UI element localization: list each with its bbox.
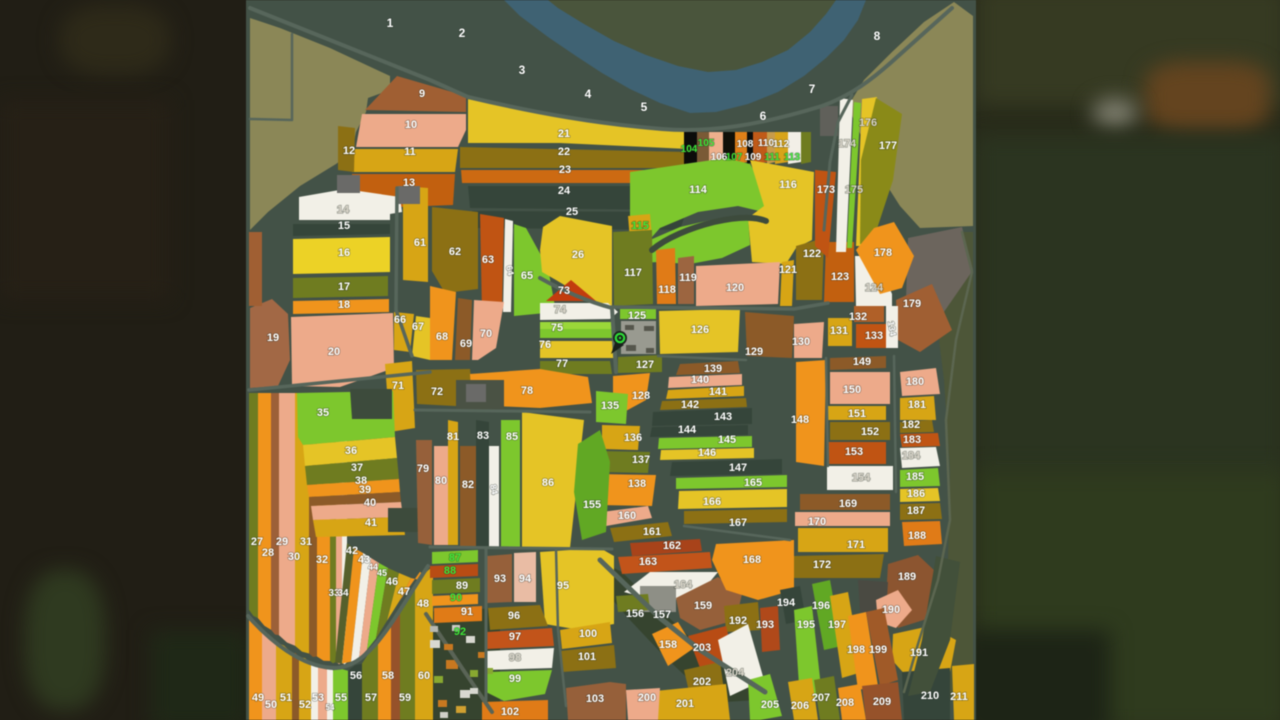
svg-text:209: 209 [873,696,891,708]
svg-text:153: 153 [845,446,863,458]
svg-text:81: 81 [447,431,459,443]
svg-text:76: 76 [539,339,551,351]
svg-text:75: 75 [551,322,563,334]
svg-text:13: 13 [403,177,415,189]
svg-text:164: 164 [674,579,693,591]
svg-text:207: 207 [812,692,830,704]
svg-text:140: 140 [691,374,709,386]
svg-text:19: 19 [267,332,279,344]
svg-text:173: 173 [817,184,835,196]
svg-text:107: 107 [726,152,743,163]
svg-text:3: 3 [519,63,526,77]
svg-text:190: 190 [882,604,900,616]
svg-text:34: 34 [337,588,349,599]
svg-text:79: 79 [417,463,429,475]
svg-text:105: 105 [698,138,715,149]
svg-text:74: 74 [554,304,567,316]
svg-text:186: 186 [907,488,925,500]
svg-text:163: 163 [639,556,657,568]
svg-text:25: 25 [566,206,578,218]
svg-text:73: 73 [558,285,570,297]
svg-text:131: 131 [830,325,848,337]
svg-text:181: 181 [908,399,926,411]
svg-text:185: 185 [906,471,924,483]
svg-text:84: 84 [488,483,500,495]
svg-text:120: 120 [726,282,744,294]
svg-text:28: 28 [262,547,274,559]
svg-text:136: 136 [624,432,642,444]
svg-text:175: 175 [845,184,863,196]
svg-text:56: 56 [350,670,362,682]
svg-text:178: 178 [874,247,892,259]
svg-text:104: 104 [681,144,698,155]
svg-text:70: 70 [480,328,492,340]
svg-text:162: 162 [663,540,681,552]
svg-text:144: 144 [678,424,697,436]
svg-text:167: 167 [729,517,747,529]
svg-text:90: 90 [450,592,462,604]
svg-text:200: 200 [638,692,656,704]
svg-text:64: 64 [504,264,516,276]
svg-text:16: 16 [338,247,350,259]
svg-text:102: 102 [501,706,519,718]
svg-text:130: 130 [792,336,810,348]
svg-text:24: 24 [558,185,571,197]
svg-text:22: 22 [558,146,570,158]
svg-text:59: 59 [399,692,411,704]
svg-text:42: 42 [346,545,358,557]
svg-text:89: 89 [456,580,468,592]
svg-text:111: 111 [764,152,780,163]
svg-text:137: 137 [632,454,650,466]
svg-text:115: 115 [631,220,649,232]
svg-text:191: 191 [910,647,928,659]
svg-text:171: 171 [847,539,865,551]
svg-text:83: 83 [477,430,489,442]
svg-text:116: 116 [779,179,797,191]
svg-text:31: 31 [300,536,312,548]
svg-text:196: 196 [812,600,830,612]
svg-text:122: 122 [803,248,821,260]
svg-text:41: 41 [365,517,377,529]
svg-text:91: 91 [461,606,473,618]
svg-text:94: 94 [519,573,532,585]
svg-text:62: 62 [449,246,461,258]
svg-text:72: 72 [431,386,443,398]
svg-text:112: 112 [773,139,790,150]
svg-text:132: 132 [849,311,867,323]
svg-text:14: 14 [337,204,350,216]
svg-text:52: 52 [299,699,311,711]
svg-text:53: 53 [312,692,324,704]
svg-text:193: 193 [756,619,774,631]
svg-text:20: 20 [328,346,340,358]
svg-text:93: 93 [494,573,506,585]
svg-text:156: 156 [626,608,644,620]
svg-text:176: 176 [859,117,877,129]
svg-text:146: 146 [698,447,716,459]
svg-text:154: 154 [852,472,871,484]
svg-text:80: 80 [435,475,447,487]
svg-text:103: 103 [586,693,604,705]
svg-text:32: 32 [316,554,328,566]
svg-text:17: 17 [338,281,350,293]
svg-text:128: 128 [632,390,650,402]
svg-text:108: 108 [737,139,754,150]
svg-text:88: 88 [444,565,456,577]
svg-text:143: 143 [714,411,732,423]
svg-text:60: 60 [418,670,430,682]
svg-text:95: 95 [557,580,569,592]
svg-text:114: 114 [689,184,708,196]
svg-text:82: 82 [462,479,474,491]
svg-text:204: 204 [726,667,745,679]
svg-text:147: 147 [729,462,747,474]
svg-text:177: 177 [879,140,897,152]
svg-text:55: 55 [335,692,347,704]
svg-text:21: 21 [558,128,570,140]
svg-text:40: 40 [364,497,376,509]
svg-text:119: 119 [679,272,697,284]
svg-text:49: 49 [252,692,264,704]
svg-text:208: 208 [836,697,854,709]
svg-text:98: 98 [509,652,521,664]
svg-text:149: 149 [853,356,871,368]
svg-text:211: 211 [950,691,968,703]
svg-text:166: 166 [703,496,721,508]
svg-text:158: 158 [659,639,677,651]
svg-text:5: 5 [641,100,648,114]
svg-text:125: 125 [628,310,646,322]
svg-text:7: 7 [809,82,816,96]
svg-text:189: 189 [898,571,916,583]
svg-text:37: 37 [351,462,363,474]
svg-text:6: 6 [760,109,767,123]
svg-text:126: 126 [691,324,709,336]
svg-text:150: 150 [843,384,861,396]
svg-text:29: 29 [276,536,288,548]
svg-text:183: 183 [903,434,921,446]
svg-text:159: 159 [694,600,712,612]
svg-text:100: 100 [579,628,597,640]
svg-text:129: 129 [745,346,763,358]
svg-text:30: 30 [288,551,300,563]
svg-text:68: 68 [436,331,448,343]
svg-text:180: 180 [906,376,924,388]
svg-text:23: 23 [559,164,571,176]
svg-text:12: 12 [343,145,355,157]
svg-text:174: 174 [838,138,857,150]
svg-text:63: 63 [482,254,494,266]
svg-text:142: 142 [681,399,699,411]
svg-text:168: 168 [743,554,761,566]
svg-text:165: 165 [744,477,762,489]
svg-text:113: 113 [784,152,801,163]
svg-text:202: 202 [693,676,711,688]
svg-text:148: 148 [791,414,809,426]
svg-text:18: 18 [338,299,350,311]
svg-text:51: 51 [280,692,292,704]
svg-text:199: 199 [869,644,887,656]
svg-text:109: 109 [745,152,762,163]
svg-text:46: 46 [386,576,398,588]
svg-text:87: 87 [449,552,461,564]
svg-text:50: 50 [265,699,277,711]
svg-text:160: 160 [618,510,636,522]
svg-text:66: 66 [394,314,406,326]
svg-text:151: 151 [848,408,866,420]
svg-text:9: 9 [419,88,425,100]
svg-text:101: 101 [578,651,596,663]
svg-text:117: 117 [624,267,642,279]
svg-text:203: 203 [693,642,711,654]
svg-text:86: 86 [542,477,554,489]
svg-text:170: 170 [808,516,826,528]
svg-text:138: 138 [628,478,646,490]
svg-text:77: 77 [556,358,568,370]
svg-text:197: 197 [828,619,846,631]
svg-text:36: 36 [345,445,357,457]
svg-text:201: 201 [676,698,694,710]
svg-text:67: 67 [412,321,424,333]
svg-text:97: 97 [509,631,521,643]
svg-text:188: 188 [908,530,926,542]
svg-text:15: 15 [338,220,350,232]
svg-text:35: 35 [317,407,329,419]
svg-text:1: 1 [387,16,394,30]
svg-text:26: 26 [572,249,584,261]
svg-text:69: 69 [460,338,472,350]
svg-text:8: 8 [874,29,881,43]
svg-text:206: 206 [791,700,809,712]
svg-text:205: 205 [761,699,779,711]
svg-text:179: 179 [903,298,921,310]
svg-text:11: 11 [404,146,416,158]
svg-text:192: 192 [729,615,747,627]
svg-text:152: 152 [861,426,879,438]
svg-text:54: 54 [326,703,335,712]
svg-text:169: 169 [839,498,857,510]
svg-text:187: 187 [907,505,925,517]
svg-text:145: 145 [718,434,736,446]
svg-text:182: 182 [902,419,920,431]
svg-text:141: 141 [709,386,727,398]
svg-text:198: 198 [847,644,865,656]
svg-text:195: 195 [797,619,815,631]
svg-text:48: 48 [417,598,429,610]
svg-text:58: 58 [382,670,394,682]
svg-text:127: 127 [636,359,654,371]
svg-text:96: 96 [508,610,520,622]
svg-text:39: 39 [359,484,371,496]
svg-text:92: 92 [454,626,466,638]
svg-text:121: 121 [779,264,797,276]
svg-text:118: 118 [658,284,676,296]
svg-text:172: 172 [813,559,831,571]
svg-text:4: 4 [585,87,592,101]
svg-text:57: 57 [365,692,377,704]
svg-text:123: 123 [831,271,849,283]
svg-text:71: 71 [392,380,404,392]
svg-text:99: 99 [509,673,521,685]
svg-text:155: 155 [583,499,601,511]
svg-text:194: 194 [777,597,796,609]
svg-text:124: 124 [865,282,884,294]
svg-text:161: 161 [643,526,661,538]
svg-text:210: 210 [921,690,939,702]
svg-text:157: 157 [653,609,671,621]
svg-text:85: 85 [506,431,518,443]
svg-text:2: 2 [459,26,466,40]
svg-text:10: 10 [405,119,417,131]
svg-text:47: 47 [398,586,410,598]
svg-text:61: 61 [414,237,426,249]
svg-text:78: 78 [521,385,533,397]
svg-text:133: 133 [865,330,883,342]
svg-text:135: 135 [601,400,619,412]
svg-text:184: 184 [902,450,921,462]
svg-text:65: 65 [521,270,533,282]
